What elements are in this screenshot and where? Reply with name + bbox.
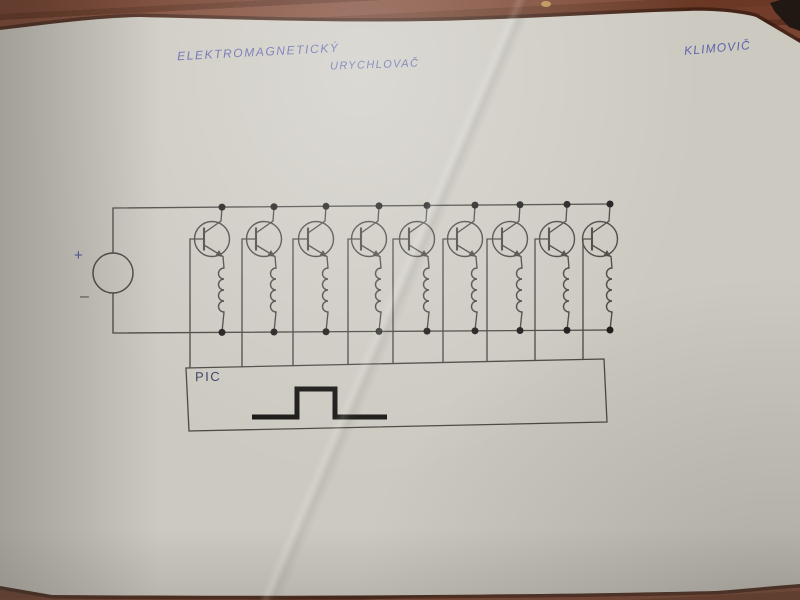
top-junction-dot-2: [271, 203, 278, 210]
schematic-svg: [0, 0, 800, 600]
top-junction-dot-5: [424, 202, 431, 209]
top-junction-dot-1: [219, 204, 226, 211]
top-junction-dot-4: [376, 202, 383, 209]
top-junction-dot-6: [472, 202, 479, 209]
bottom-junction-dot-3: [323, 328, 330, 335]
top-junction-dot-8: [564, 201, 571, 208]
top-junction-dot-7: [517, 201, 524, 208]
top-junction-dot-9: [607, 201, 614, 208]
wood-speck: [541, 1, 551, 7]
bottom-junction-dot-7: [517, 327, 524, 334]
bottom-junction-dot-8: [564, 327, 571, 334]
top-junction-dot-3: [323, 203, 330, 210]
bottom-junction-dot-5: [424, 328, 431, 335]
bottom-junction-dot-1: [219, 329, 226, 336]
bottom-junction-dot-6: [472, 327, 479, 334]
photo-backdrop: ELEKTROMAGNETICKÝ URYCHLOVAČ KLIMOVIČ PI…: [0, 0, 800, 600]
paper-sheet: [0, 11, 800, 596]
bottom-junction-dot-9: [607, 327, 614, 334]
bottom-junction-dot-4: [376, 328, 383, 335]
bottom-junction-dot-2: [271, 329, 278, 336]
